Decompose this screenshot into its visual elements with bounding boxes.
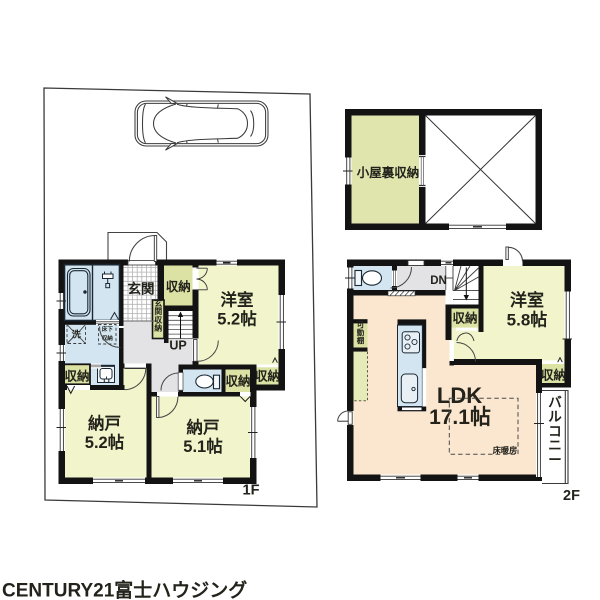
svg-text:LDK: LDK [437, 383, 482, 408]
svg-text:小屋裏収納: 小屋裏収納 [356, 165, 420, 180]
svg-text:5.1帖: 5.1帖 [183, 436, 223, 456]
svg-text:可動棚: 可動棚 [357, 320, 365, 345]
svg-text:5.8帖: 5.8帖 [507, 310, 548, 330]
svg-text:洗: 洗 [72, 329, 81, 340]
svg-text:床下: 床下 [102, 325, 114, 333]
svg-text:玄関: 玄関 [128, 281, 155, 297]
svg-text:納戸: 納戸 [187, 417, 220, 437]
svg-text:収納: 収納 [452, 311, 477, 326]
svg-text:収納: 収納 [225, 374, 250, 389]
svg-text:5.2帖: 5.2帖 [85, 432, 125, 452]
svg-text:CENTURY21富士ハウジング: CENTURY21富士ハウジング [2, 579, 247, 600]
svg-text:収納: 収納 [166, 279, 191, 294]
svg-text:収納: 収納 [541, 368, 566, 383]
svg-text:玄関収納: 玄関収納 [154, 298, 162, 333]
svg-text:2F: 2F [563, 488, 580, 504]
svg-text:収納: 収納 [64, 369, 89, 384]
svg-text:UP: UP [169, 339, 186, 353]
svg-text:DN: DN [430, 275, 447, 287]
svg-text:収納: 収納 [255, 369, 280, 384]
svg-text:洋室: 洋室 [221, 290, 254, 310]
svg-text:17.1帖: 17.1帖 [429, 406, 491, 429]
svg-text:1F: 1F [243, 483, 260, 499]
svg-text:床暖房: 床暖房 [493, 445, 518, 455]
svg-text:納戸: 納戸 [88, 413, 121, 433]
svg-text:バルコニー: バルコニー [548, 395, 562, 468]
svg-text:洋室: 洋室 [510, 290, 544, 310]
svg-text:5.2帖: 5.2帖 [217, 309, 257, 329]
